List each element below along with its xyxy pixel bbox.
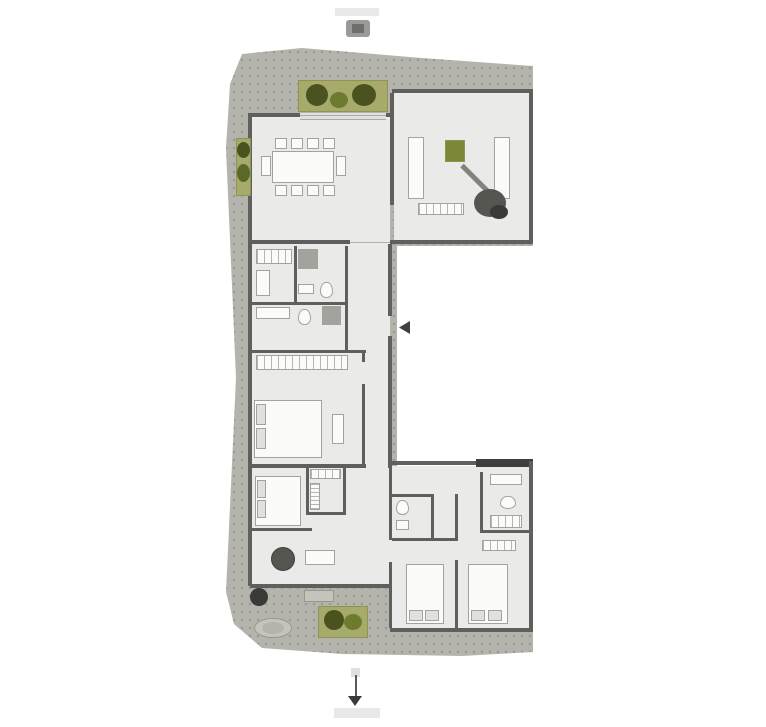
plant-top-3 [352, 84, 376, 106]
shower-room-c [322, 306, 341, 325]
wall-wing-divider-a [389, 468, 392, 540]
dining-chair-end-right [336, 156, 346, 176]
sink-room-b [298, 284, 314, 294]
wall-topblock-bottom-right [390, 240, 533, 244]
wall-wing-divider-b [389, 562, 392, 628]
wall-bath4-bottom [480, 530, 533, 533]
shelf-bath-4 [490, 515, 522, 528]
vanity-room-c [256, 307, 290, 319]
dining-chair-4 [323, 138, 335, 149]
wall-bedroom1-right-b [362, 384, 365, 466]
wall-bath-v1 [294, 246, 297, 304]
wall-wing-right-upper [388, 244, 392, 316]
bottom-arrow-head [348, 696, 362, 706]
bottom-arrow-line [355, 675, 357, 698]
wall-bath3-top [392, 494, 434, 497]
coffee-table [445, 140, 465, 162]
toilet-bath-4 [500, 496, 516, 509]
wall-bottomblock-top-thick [476, 459, 533, 467]
closet-shelf-a [310, 469, 341, 479]
tv-bench [418, 203, 464, 215]
vanity-bath-4 [490, 474, 522, 485]
dining-chair-end-left [261, 156, 271, 176]
shower-room-b [298, 249, 318, 269]
top-caption-bar [335, 8, 379, 16]
plant-bottom-2 [344, 614, 362, 630]
plant-foliage-small [490, 205, 508, 219]
wall-topblock-bottom-left [250, 240, 350, 244]
wall-dining-living-divider [390, 93, 394, 205]
armchair-round [271, 547, 295, 571]
wall-bedrooms-divider-b [455, 560, 458, 628]
wall-bedroom1-right-a [362, 352, 365, 362]
bed-2-pillow-b [257, 500, 266, 518]
bed-2-pillow-a [257, 480, 266, 498]
bench-bedroom-1 [332, 414, 344, 444]
wall-bottom-right-bottom [390, 628, 533, 632]
terrace-steps [300, 113, 386, 120]
dining-chair-1 [275, 138, 287, 149]
bed-3-pillow-b [425, 610, 439, 621]
wall-bath3-bottom [392, 538, 458, 541]
wall-closet-v2 [343, 466, 346, 514]
closet-shelf-b [310, 483, 320, 510]
wall-closet-v1 [306, 466, 309, 514]
dining-table [272, 151, 334, 183]
floorplan-stage [0, 0, 766, 727]
wall-bottom-right-outer [529, 461, 533, 632]
side-table [305, 550, 335, 565]
wall-bottom-left-bottom [250, 584, 392, 588]
wall-bath4-left [480, 472, 483, 532]
bed-1-pillow-a [256, 404, 266, 425]
wall-bed2-foot [250, 528, 312, 531]
dining-chair-2 [291, 138, 303, 149]
wall-bottom-left-outer [248, 466, 252, 586]
bed-4-pillow-b [488, 610, 502, 621]
dining-chair-8 [323, 185, 335, 196]
wall-wing-right-lower [388, 336, 392, 468]
bed-4-pillow-a [471, 610, 485, 621]
wall-bath3-right [431, 494, 434, 541]
dining-chair-6 [291, 185, 303, 196]
wardrobe-bedroom-4 [482, 540, 516, 551]
plant-top-1 [306, 84, 328, 106]
bed-1-pillow-b [256, 428, 266, 449]
dining-chair-7 [307, 185, 319, 196]
dining-chair-5 [275, 185, 287, 196]
sink-bath-3 [396, 520, 409, 530]
wall-closet-h [306, 512, 346, 515]
toilet-room-c [298, 309, 311, 325]
outdoor-plant-corner [250, 588, 268, 606]
bed-3-pillow-a [409, 610, 423, 621]
wall-living-top [392, 89, 533, 93]
bottom-caption-bar [334, 708, 380, 718]
wall-wing-left [248, 244, 252, 468]
wall-living-right [529, 89, 533, 244]
terrace-oval-inner [262, 622, 284, 634]
plant-left-1 [237, 142, 250, 158]
toilet-bath-3 [396, 500, 409, 515]
entry-door-leaf [399, 321, 410, 334]
top-entry-glyph-core [352, 24, 364, 33]
toilet-room-b [320, 282, 333, 298]
outdoor-bench [304, 590, 334, 602]
plant-bottom-1 [324, 610, 344, 630]
cabinet-room-a [256, 270, 270, 296]
wardrobe-bedroom-1 [256, 355, 348, 370]
wall-bedrooms-divider-a [455, 494, 458, 540]
closet-room-a [256, 249, 292, 264]
plant-left-2 [237, 164, 250, 182]
floorplan-page [0, 0, 766, 727]
wall-bath-h1 [250, 302, 348, 305]
plant-top-2 [330, 92, 348, 108]
wall-corridor-left [345, 246, 348, 352]
wall-bath-h2 [250, 350, 366, 353]
dining-chair-3 [307, 138, 319, 149]
sofa-left [408, 137, 424, 199]
